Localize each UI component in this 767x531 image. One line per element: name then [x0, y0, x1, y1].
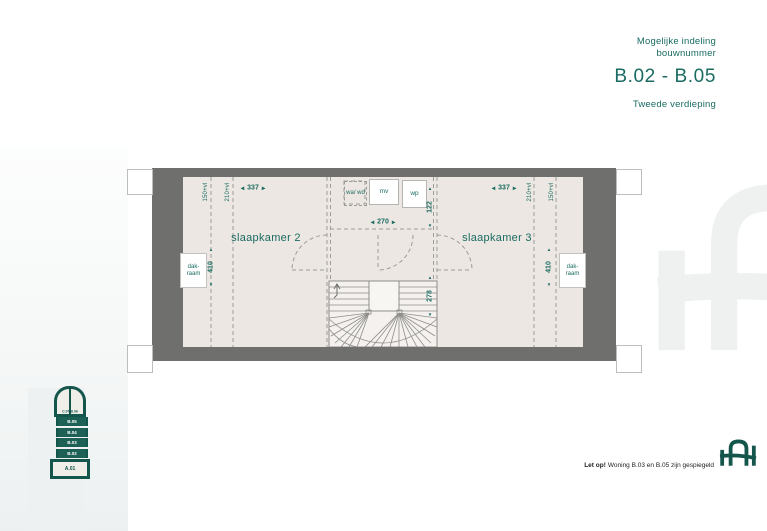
- arrow-down-icon: ▼: [547, 282, 551, 287]
- tower-level-b05: B.05: [56, 417, 88, 426]
- tower-roof: C.07/B.06: [54, 386, 86, 417]
- header-subtitle-line2: bouwnummer: [614, 48, 716, 60]
- arrow-left-icon: ◀: [371, 219, 374, 225]
- room-label-slaapkamer-2: slaapkamer 2: [231, 232, 301, 244]
- knee-wall-label-left-inner: 210+vl: [225, 182, 231, 201]
- dimension-closet-depth: ▲ 122 ▼: [423, 186, 437, 228]
- tower-level-b03: B.03: [56, 438, 88, 447]
- tower-levels: B.05 B.04 B.03 B.02: [54, 417, 86, 459]
- room-label-slaapkamer-3: slaapkamer 3: [462, 232, 532, 244]
- arrow-up-icon: ▲: [428, 186, 432, 191]
- arrow-down-icon: ▼: [209, 282, 213, 287]
- party-wall-marker-top-right: [616, 169, 642, 195]
- tower-level-b02: B.02: [56, 449, 88, 458]
- header-subtitle-line1: Mogelijke indeling: [614, 36, 716, 48]
- fixture-mechanical-ventilation: mv: [369, 179, 399, 205]
- dimension-stair-depth: ▲ 278 ▼: [423, 275, 437, 317]
- skylight-right: dak-raam: [559, 253, 586, 288]
- arrow-left-icon: ◀: [241, 185, 244, 191]
- tower-level-base: A.01: [50, 459, 90, 479]
- party-wall-marker-top-left: [127, 169, 153, 195]
- knee-wall-label-right-inner: 210+vl: [527, 182, 533, 201]
- arrow-down-icon: ▼: [428, 223, 432, 228]
- staircase: [329, 281, 437, 347]
- mirror-notice-lead: Let op!: [584, 462, 606, 469]
- floor-name: Tweede verdieping: [614, 99, 716, 110]
- bouwnummer-range: B.02 - B.05: [614, 66, 716, 88]
- dimension-hall-width: ◀ 270 ▶: [371, 219, 396, 226]
- tower-level-b04: B.04: [56, 428, 88, 437]
- dimension-room-right-width: ◀ 337 ▶: [492, 185, 517, 192]
- stair-void: [369, 281, 399, 311]
- dimension-room-right-depth: ▲ 410 ▼: [542, 247, 556, 287]
- brand-monogram-watermark-icon: [652, 158, 767, 370]
- arrow-right-icon: ▶: [513, 185, 516, 191]
- arrow-right-icon: ▶: [392, 219, 395, 225]
- brand-logo-icon: [719, 435, 757, 469]
- door-swing-hall: [378, 235, 413, 270]
- party-wall-marker-bottom-left: [127, 345, 153, 373]
- skylight-left: dak-raam: [180, 253, 207, 288]
- dimension-room-left-width: ◀ 337 ▶: [241, 185, 266, 192]
- party-wall-marker-bottom-right: [616, 345, 642, 373]
- arrow-up-icon: ▲: [209, 247, 213, 252]
- arrow-right-icon: ▶: [262, 185, 265, 191]
- knee-wall-label-right-outer: 150+vl: [549, 182, 555, 201]
- fixture-washer: wa/ wd: [344, 181, 367, 206]
- floorplan-sheet: { "header": { "subtitle_line1": "Mogelij…: [0, 0, 767, 531]
- knee-wall-label-left-outer: 150+vl: [203, 182, 209, 201]
- arrow-up-icon: ▲: [428, 275, 432, 280]
- arrow-left-icon: ◀: [492, 185, 495, 191]
- arrow-up-icon: ▲: [547, 247, 551, 252]
- building-level-key: C.07/B.06 B.05 B.04 B.03 B.02 A.01: [50, 386, 90, 482]
- dimension-room-left-depth: ▲ 410 ▼: [204, 247, 218, 287]
- tower-level-top: C.07/B.06: [62, 410, 78, 414]
- sheet-header: Mogelijke indeling bouwnummer B.02 - B.0…: [614, 36, 716, 110]
- mirror-notice: Let op!Woning B.03 en B.05 zijn gespiege…: [584, 462, 714, 469]
- arrow-down-icon: ▼: [428, 312, 432, 317]
- mirror-notice-text: Woning B.03 en B.05 zijn gespiegeld: [608, 462, 714, 469]
